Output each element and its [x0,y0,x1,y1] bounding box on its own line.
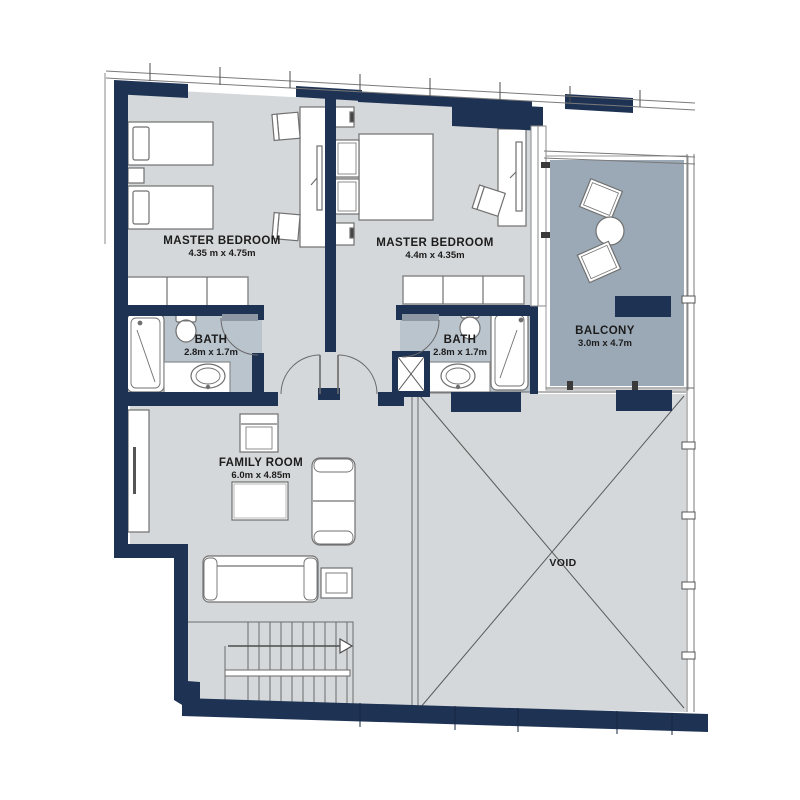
wardrobe-bedroom1 [126,277,248,306]
armchair [240,414,278,452]
sink-icon [428,362,490,393]
window-tick [541,232,550,238]
bathtub-icon [491,311,528,390]
side-table [321,568,352,598]
void-lintel-right [616,390,672,411]
planter [615,296,671,317]
sofa-vertical [312,458,355,545]
toilet-icon [176,314,196,342]
chair-bedroom1-top [272,112,300,140]
balcony-table [596,217,624,245]
twin-bed-1 [128,122,213,165]
sofa-horizontal [203,556,318,602]
shaft-box [395,354,427,394]
desk-bedroom1 [300,107,328,247]
bathtub-icon [127,314,164,392]
nightstand-1 [128,168,144,183]
chair-bedroom1-bottom [272,213,300,241]
wardrobe-bedroom2 [403,276,524,304]
coffee-table [232,482,288,520]
floorplan-canvas: MASTER BEDROOM 4.35 m x 4.75m MASTER BED… [0,0,800,800]
tall-cabinet [128,410,149,532]
wall-bedroom-partition [325,94,336,352]
void-lintel-left [451,392,521,412]
sink-icon [164,362,230,393]
floorplan-svg [0,0,800,800]
double-bed [335,134,433,220]
window-tick [541,162,550,168]
twin-bed-2 [128,186,213,229]
desk-bedroom2 [498,129,526,226]
